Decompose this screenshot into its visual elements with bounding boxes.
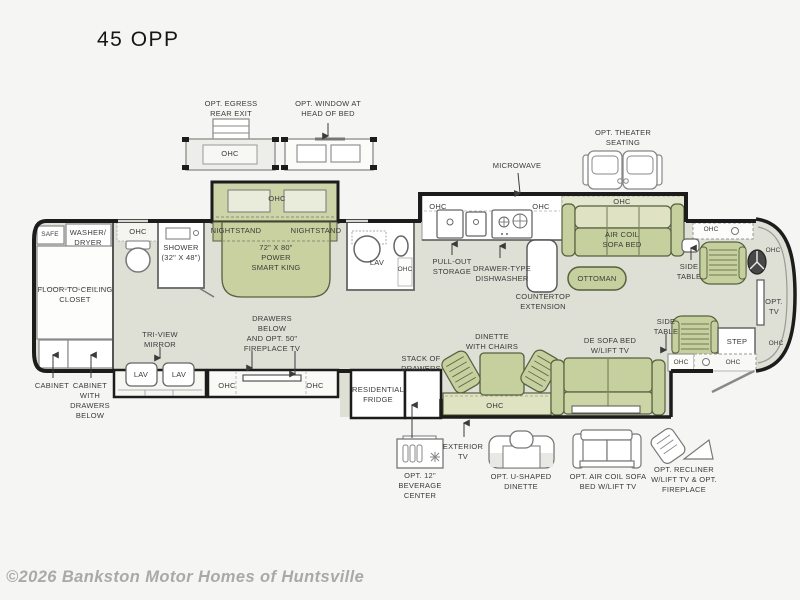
opt-window-icon <box>281 137 377 170</box>
opt-egress-icon <box>182 119 279 170</box>
entry-door <box>712 371 754 392</box>
kitchen-ohc-right-label: OHC <box>532 202 549 212</box>
cab-ohc-label: OHC <box>704 226 719 235</box>
wall-ohc-bottom-label: OHC <box>769 340 784 349</box>
bedroom-ohc-cabinet <box>228 190 270 212</box>
cab-ohc-cabinet <box>693 223 753 239</box>
tv-wall-ohc-left-label: OHC <box>218 381 235 391</box>
opt-sofa-bed-icon <box>573 430 641 468</box>
dinette-ohc-label: OHC <box>486 401 503 411</box>
dinette-table <box>480 353 524 395</box>
drawers-fireplace-label: DRAWERS BELOW AND OPT. 50" FIREPLACE TV <box>244 314 300 354</box>
bath-ohc-label: OHC <box>129 227 146 237</box>
mid-bath-ohc-label: OHC <box>398 266 413 275</box>
opt-sofa-bed-label: OPT. AIR COIL SOFA BED W/LIFT TV <box>570 472 647 492</box>
kitchen-sink <box>437 210 463 238</box>
exterior-tv-label: EXTERIOR TV <box>443 442 483 462</box>
opt-theater-label: OPT. THEATER SEATING <box>595 128 651 148</box>
cabinet-label: CABINET <box>35 381 69 391</box>
watermark: ©2026 Bankston Motor Homes of Huntsville <box>6 568 364 587</box>
lift-tv-bar <box>572 406 640 413</box>
floorplan-drawing <box>0 0 800 600</box>
fireplace-triangle-icon <box>684 440 713 459</box>
driver-chair <box>700 242 746 284</box>
bedroom-ohc-label: OHC <box>268 194 285 204</box>
mid-bath-toilet <box>394 236 408 256</box>
opt-recliner-label: OPT. RECLINER W/LIFT TV & OPT. FIREPLACE <box>651 465 717 495</box>
mid-bath-lav-label: LAV <box>370 258 384 268</box>
residential-fridge-label: RESIDENTIAL FRIDGE <box>352 385 404 405</box>
entry-ohc-label: OHC <box>726 359 741 368</box>
snowflake-glyph <box>430 452 440 462</box>
bed-label: 72" X 80" POWER SMART KING <box>252 243 301 273</box>
opt-tv-label: OPT. TV <box>761 297 787 317</box>
mid-bath <box>347 222 414 290</box>
shower-fixture <box>166 228 190 239</box>
theater-seating-icon <box>583 151 662 189</box>
passenger-chair <box>672 316 718 358</box>
stack-of-drawers-box <box>405 370 441 418</box>
wall-ohc-top-label: OHC <box>766 247 781 256</box>
bedroom-ohc-cabinet <box>284 190 326 212</box>
egress-ohc-label: OHC <box>221 149 238 159</box>
opt-egress-label: OPT. EGRESS REAR EXIT <box>205 99 258 119</box>
nightstand-left-label: NIGHTSTAND <box>211 226 262 236</box>
stack-of-drawers-label: STACK OF DRAWERS <box>401 354 441 374</box>
microwave-label: MICROWAVE <box>493 161 542 171</box>
air-coil-sofa-label: AIR COIL SOFA BED <box>602 230 641 250</box>
pull-out-storage-label: PULL-OUT STORAGE <box>432 257 471 277</box>
beverage-center-icon <box>397 436 443 468</box>
dishwasher-label: DRAWER-TYPE DISHWASHER <box>473 264 531 284</box>
ottoman-label: OTTOMAN <box>577 274 616 284</box>
step-label: STEP <box>727 337 748 347</box>
side-table-upper-label: SIDE TABLE <box>677 262 701 282</box>
kitchen-ohc-left-label: OHC <box>429 202 446 212</box>
u-dinette-label: OPT. U-SHAPED DINETTE <box>491 472 552 492</box>
de-sofa-bed <box>551 358 665 415</box>
lav-left-label: LAV <box>134 370 148 380</box>
countertop-extension-label: COUNTERTOP EXTENSION <box>516 292 571 312</box>
fireplace-tv <box>243 375 301 381</box>
tv-wall-ohc-right-label: OHC <box>306 381 323 391</box>
side-table-ohc-label: OHC <box>674 359 689 368</box>
cabinet-drawers-label: CABINET WITH DRAWERS BELOW <box>70 381 110 421</box>
washer-dryer-label: WASHER/ DRYER <box>70 228 106 248</box>
opt-recliner-icon <box>649 426 713 465</box>
side-table-lower-label: SIDE TABLE <box>654 317 678 337</box>
beverage-center-label: OPT. 12" BEVERAGE CENTER <box>398 471 441 501</box>
opt-window-label: OPT. WINDOW AT HEAD OF BED <box>295 99 361 119</box>
tri-view-mirror-label: TRI-VIEW MIRROR <box>142 330 178 350</box>
u-shaped-dinette-icon <box>489 431 554 468</box>
shower-label: SHOWER (32" X 48") <box>162 243 201 263</box>
floorplan-page: 45 OPP OPT. EGRESS REAR EXIT OHC OPT. WI… <box>0 0 800 600</box>
dinette-label: DINETTE WITH CHAIRS <box>466 332 518 352</box>
de-sofa-label: DE SOFA BED W/LIFT TV <box>584 336 636 356</box>
lav-right-label: LAV <box>172 370 186 380</box>
nightstand-right-label: NIGHTSTAND <box>291 226 342 236</box>
closet-label: FLOOR-TO-CEILING CLOSET <box>37 285 112 305</box>
safe-label: SAFE <box>41 231 58 240</box>
toilet <box>126 248 150 272</box>
page-title: 45 OPP <box>97 28 180 52</box>
sofa-ohc-label: OHC <box>613 197 630 207</box>
countertop-extension-box <box>527 240 557 292</box>
